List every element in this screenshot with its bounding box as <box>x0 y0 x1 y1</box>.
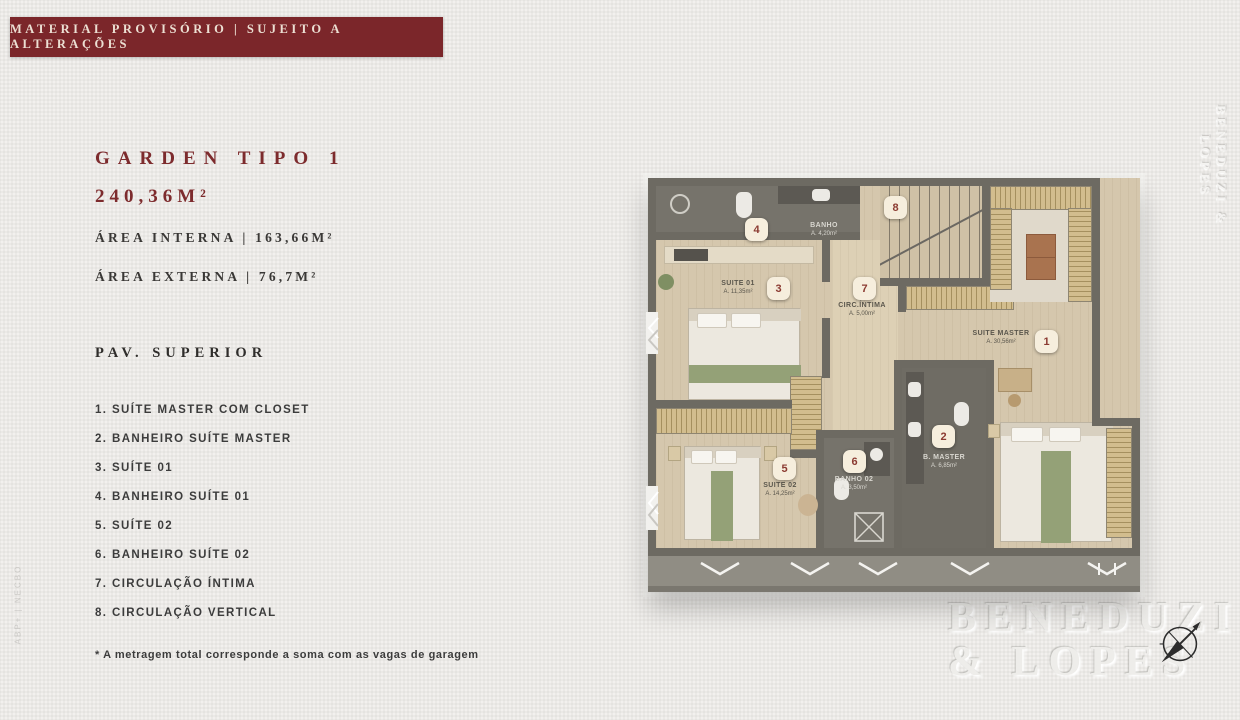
wall <box>898 278 906 312</box>
marker-5-suite02: 5 <box>773 457 796 480</box>
window-chevron-icon <box>788 560 832 578</box>
marker-1-suite-master: 1 <box>1035 330 1058 353</box>
outer-wall-left <box>648 178 656 312</box>
toilet-icon <box>954 402 969 426</box>
closet-wardrobe <box>990 208 1012 290</box>
closet-bench <box>1026 234 1056 280</box>
wardrobe <box>656 408 792 434</box>
room-label-banho01: BANHO A. 4,20m² <box>796 222 852 238</box>
legend-item: 3. SUÍTE 01 <box>95 454 310 483</box>
sink-icon <box>908 382 921 397</box>
wall <box>986 360 994 548</box>
window-chevron-icon <box>698 560 742 578</box>
marker-2-banheiro-master: 2 <box>932 425 955 448</box>
nightstand <box>988 424 1000 438</box>
shower-icon <box>670 194 690 214</box>
wall <box>656 400 792 408</box>
room-label-banho02: BANHO 02 A. 3,50m² <box>826 476 882 492</box>
page: MATERIAL PROVISÓRIO | SUJEITO A ALTERAÇÕ… <box>0 0 1240 720</box>
legend-item: 5. SUÍTE 02 <box>95 512 310 541</box>
closet-wardrobe <box>990 186 1092 210</box>
sink-icon <box>812 189 830 201</box>
terrace-edge <box>648 586 1140 592</box>
room-label-circ-intima: CIRC.ÍNTIMA A. 5,00m² <box>830 302 894 318</box>
compass-icon <box>1148 612 1210 674</box>
window-chevron-icon <box>645 316 661 352</box>
marker-8-circulacao-vertical: 8 <box>884 196 907 219</box>
shower-icon <box>854 512 884 542</box>
wall <box>894 360 902 548</box>
wall <box>822 318 830 378</box>
marker-4-banheiro-suite01: 4 <box>745 218 768 241</box>
sink-icon <box>870 448 883 461</box>
legend-item: 6. BANHEIRO SUÍTE 02 <box>95 541 310 570</box>
marker-6-banheiro-suite02: 6 <box>843 450 866 473</box>
unit-title: GARDEN TIPO 1 <box>95 148 346 170</box>
room-label-suite-master: SUITE MASTER A. 30,56m² <box>966 330 1036 346</box>
outer-wall-right <box>1092 178 1100 426</box>
wall <box>822 240 830 282</box>
desk-chair <box>1008 394 1021 407</box>
nightstand <box>668 446 681 461</box>
tv-icon <box>674 249 708 261</box>
wall <box>982 186 990 284</box>
wardrobe <box>1106 428 1132 538</box>
legend-item: 1. SUÍTE MASTER COM CLOSET <box>95 396 310 425</box>
toilet-icon <box>736 192 752 218</box>
suite-master-bed <box>1000 422 1112 542</box>
legend-item: 2. BANHEIRO SUÍTE MASTER <box>95 425 310 454</box>
window-chevron-icon <box>645 490 661 528</box>
wall <box>816 430 824 548</box>
unit-total-area: 240,36M² <box>95 186 211 208</box>
outer-wall-left <box>648 354 656 486</box>
sink-icon <box>908 422 921 437</box>
outer-wall-right <box>1132 418 1140 556</box>
area-externa-line: ÁREA EXTERNA | 76,7M² <box>95 269 319 285</box>
desk <box>998 368 1032 392</box>
plant-icon <box>658 274 674 290</box>
closet-wardrobe <box>1068 208 1092 302</box>
outer-wall-bottom <box>648 548 1140 556</box>
legend-item: 7. CIRCULAÇÃO ÍNTIMA <box>95 570 310 599</box>
marker-7-circulacao-intima: 7 <box>853 277 876 300</box>
room-label-suite02: SUITE 02 A. 14,25m² <box>748 482 812 498</box>
right-edge-watermark: BENEDUZI & LOPES <box>1197 81 1229 251</box>
room-label-b-master: B. MASTER A. 6,85m² <box>914 454 974 470</box>
room-legend: 1. SUÍTE MASTER COM CLOSET 2. BANHEIRO S… <box>95 396 310 628</box>
provisional-material-banner: MATERIAL PROVISÓRIO | SUJEITO A ALTERAÇÕ… <box>10 17 443 57</box>
window-chevron-icon <box>1085 560 1129 578</box>
floor-plan: BANHO A. 4,20m² SUITE 01 A. 11,35m² CIRC… <box>648 178 1140 592</box>
wall <box>816 430 902 438</box>
suite01-bed <box>688 308 800 400</box>
legend-item: 8. CIRCULAÇÃO VERTICAL <box>95 599 310 628</box>
marker-3-suite01: 3 <box>767 277 790 300</box>
window-chevron-icon <box>948 560 992 578</box>
room-label-suite01: SUITE 01 A. 11,35m² <box>706 280 770 296</box>
left-edge-watermark: ABP+ | NECBO <box>14 525 23 685</box>
legend-item: 4. BANHEIRO SUÍTE 01 <box>95 483 310 512</box>
floor-label: PAV. SUPERIOR <box>95 345 267 362</box>
area-interna-line: ÁREA INTERNA | 163,66M² <box>95 230 335 246</box>
outer-wall-top <box>648 178 1100 186</box>
window-chevron-icon <box>856 560 900 578</box>
footnote: * A metragem total corresponde a soma co… <box>95 649 479 661</box>
wall <box>894 360 994 368</box>
banner-text: MATERIAL PROVISÓRIO | SUJEITO A ALTERAÇÕ… <box>10 22 443 52</box>
